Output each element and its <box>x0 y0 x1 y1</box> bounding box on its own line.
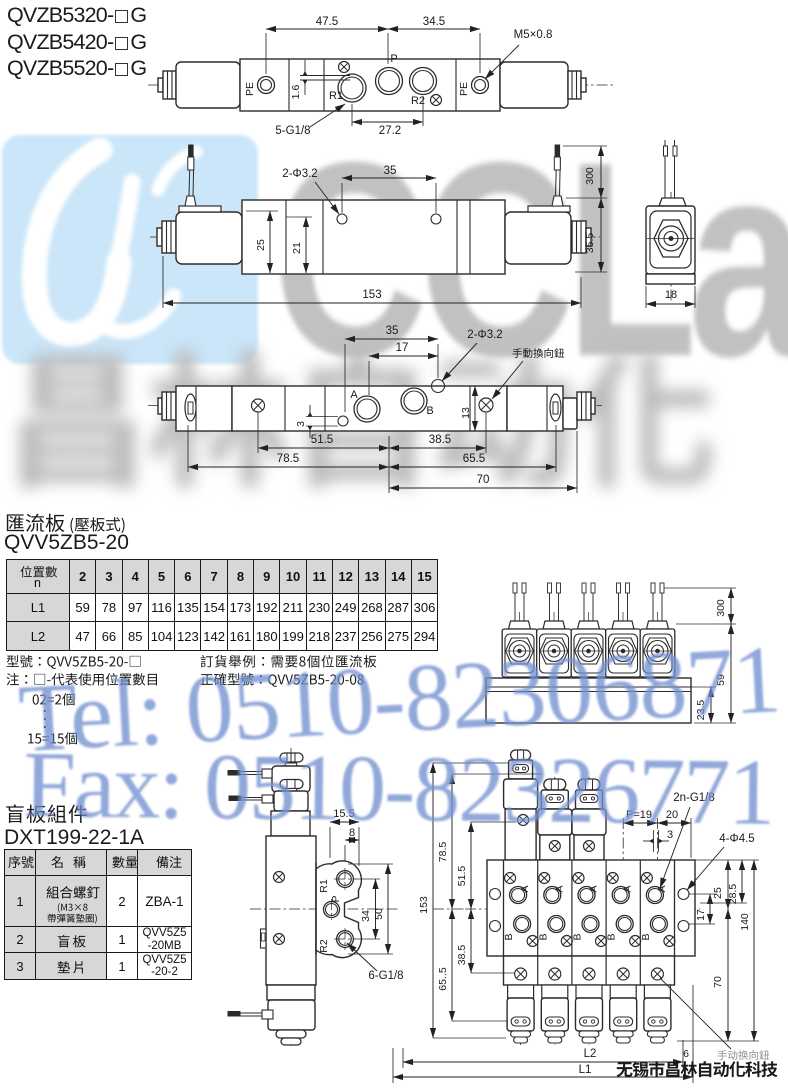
svg-text:6: 6 <box>683 1048 689 1060</box>
svg-text:153: 153 <box>362 289 381 301</box>
svg-text:140: 140 <box>739 913 751 931</box>
svg-text:70: 70 <box>477 474 490 486</box>
svg-text:18: 18 <box>665 289 677 301</box>
svg-text:B: B <box>426 405 433 417</box>
svg-text:70: 70 <box>712 976 724 988</box>
svg-text:R2: R2 <box>318 939 330 953</box>
svg-text:78.5: 78.5 <box>437 842 449 863</box>
svg-text:B: B <box>503 933 515 940</box>
svg-text:3: 3 <box>295 421 307 427</box>
svg-text:38.5: 38.5 <box>429 434 451 446</box>
svg-text:A: A <box>588 885 600 892</box>
svg-text:51.5: 51.5 <box>456 866 468 887</box>
svg-text:35: 35 <box>386 325 399 337</box>
svg-text:21: 21 <box>291 242 303 254</box>
svg-text:B: B <box>640 933 652 940</box>
svg-text:A: A <box>519 885 531 892</box>
svg-text:65..5: 65..5 <box>437 967 449 991</box>
svg-text:A: A <box>553 885 565 892</box>
svg-text:51.5: 51.5 <box>311 434 333 446</box>
svg-text:153: 153 <box>418 896 430 914</box>
svg-text:78.5: 78.5 <box>277 453 299 465</box>
svg-text:L1: L1 <box>579 1064 592 1076</box>
svg-text:PE: PE <box>458 82 470 96</box>
svg-text:PE: PE <box>244 82 256 96</box>
svg-text:35.5: 35.5 <box>584 233 596 254</box>
svg-text:27.2: 27.2 <box>379 125 401 137</box>
svg-text:A: A <box>622 885 634 892</box>
svg-text:17: 17 <box>695 909 707 921</box>
svg-text:B: B <box>606 933 618 940</box>
svg-text:25: 25 <box>255 239 267 251</box>
svg-text:25: 25 <box>712 887 724 899</box>
svg-text:34: 34 <box>360 910 372 922</box>
svg-text:M5×0.8: M5×0.8 <box>514 29 553 41</box>
svg-text:6-G1/8: 6-G1/8 <box>368 970 403 982</box>
svg-text:5-G1/8: 5-G1/8 <box>275 125 310 137</box>
svg-text:B: B <box>572 933 584 940</box>
svg-text:28.5: 28.5 <box>727 884 739 905</box>
svg-text:300: 300 <box>584 167 596 185</box>
svg-text:17: 17 <box>396 342 409 354</box>
svg-text:A: A <box>350 389 358 401</box>
svg-text:1.6: 1.6 <box>290 85 302 100</box>
svg-text:34.5: 34.5 <box>423 16 445 28</box>
svg-text:P: P <box>390 53 397 65</box>
svg-text:38.5: 38.5 <box>456 945 468 966</box>
svg-text:65.5: 65.5 <box>463 453 485 465</box>
svg-text:L2: L2 <box>584 1048 597 1060</box>
svg-text:R1: R1 <box>329 90 343 102</box>
svg-text:B: B <box>537 933 549 940</box>
svg-text:35: 35 <box>384 165 397 177</box>
svg-text:P: P <box>330 895 342 902</box>
svg-text:A: A <box>656 885 668 892</box>
svg-text:300: 300 <box>715 599 727 617</box>
svg-text:50: 50 <box>373 908 385 920</box>
svg-text:13: 13 <box>460 407 472 419</box>
svg-text:2-Φ3.2: 2-Φ3.2 <box>467 329 502 341</box>
svg-text:47.5: 47.5 <box>316 16 338 28</box>
svg-text:2-Φ3.2: 2-Φ3.2 <box>282 168 317 180</box>
svg-text:R1: R1 <box>318 879 330 893</box>
